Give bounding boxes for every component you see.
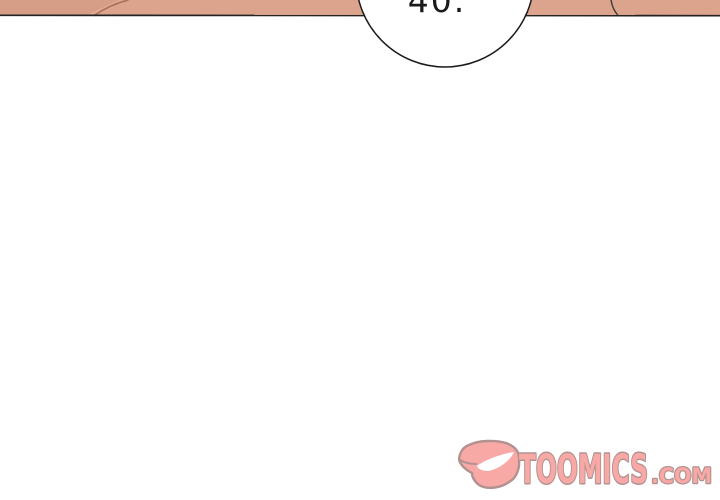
toomics-watermark: TOOMICS .COM [455,438,720,500]
toomics-brand-text: TOOMICS [519,447,648,493]
comic-panel: 40. [0,0,720,80]
speech-bubble-text: 40. [408,0,466,20]
toomics-domain-text: .COM [651,464,712,488]
webtoon-page: 40. TOOMICS .COM [0,0,720,500]
